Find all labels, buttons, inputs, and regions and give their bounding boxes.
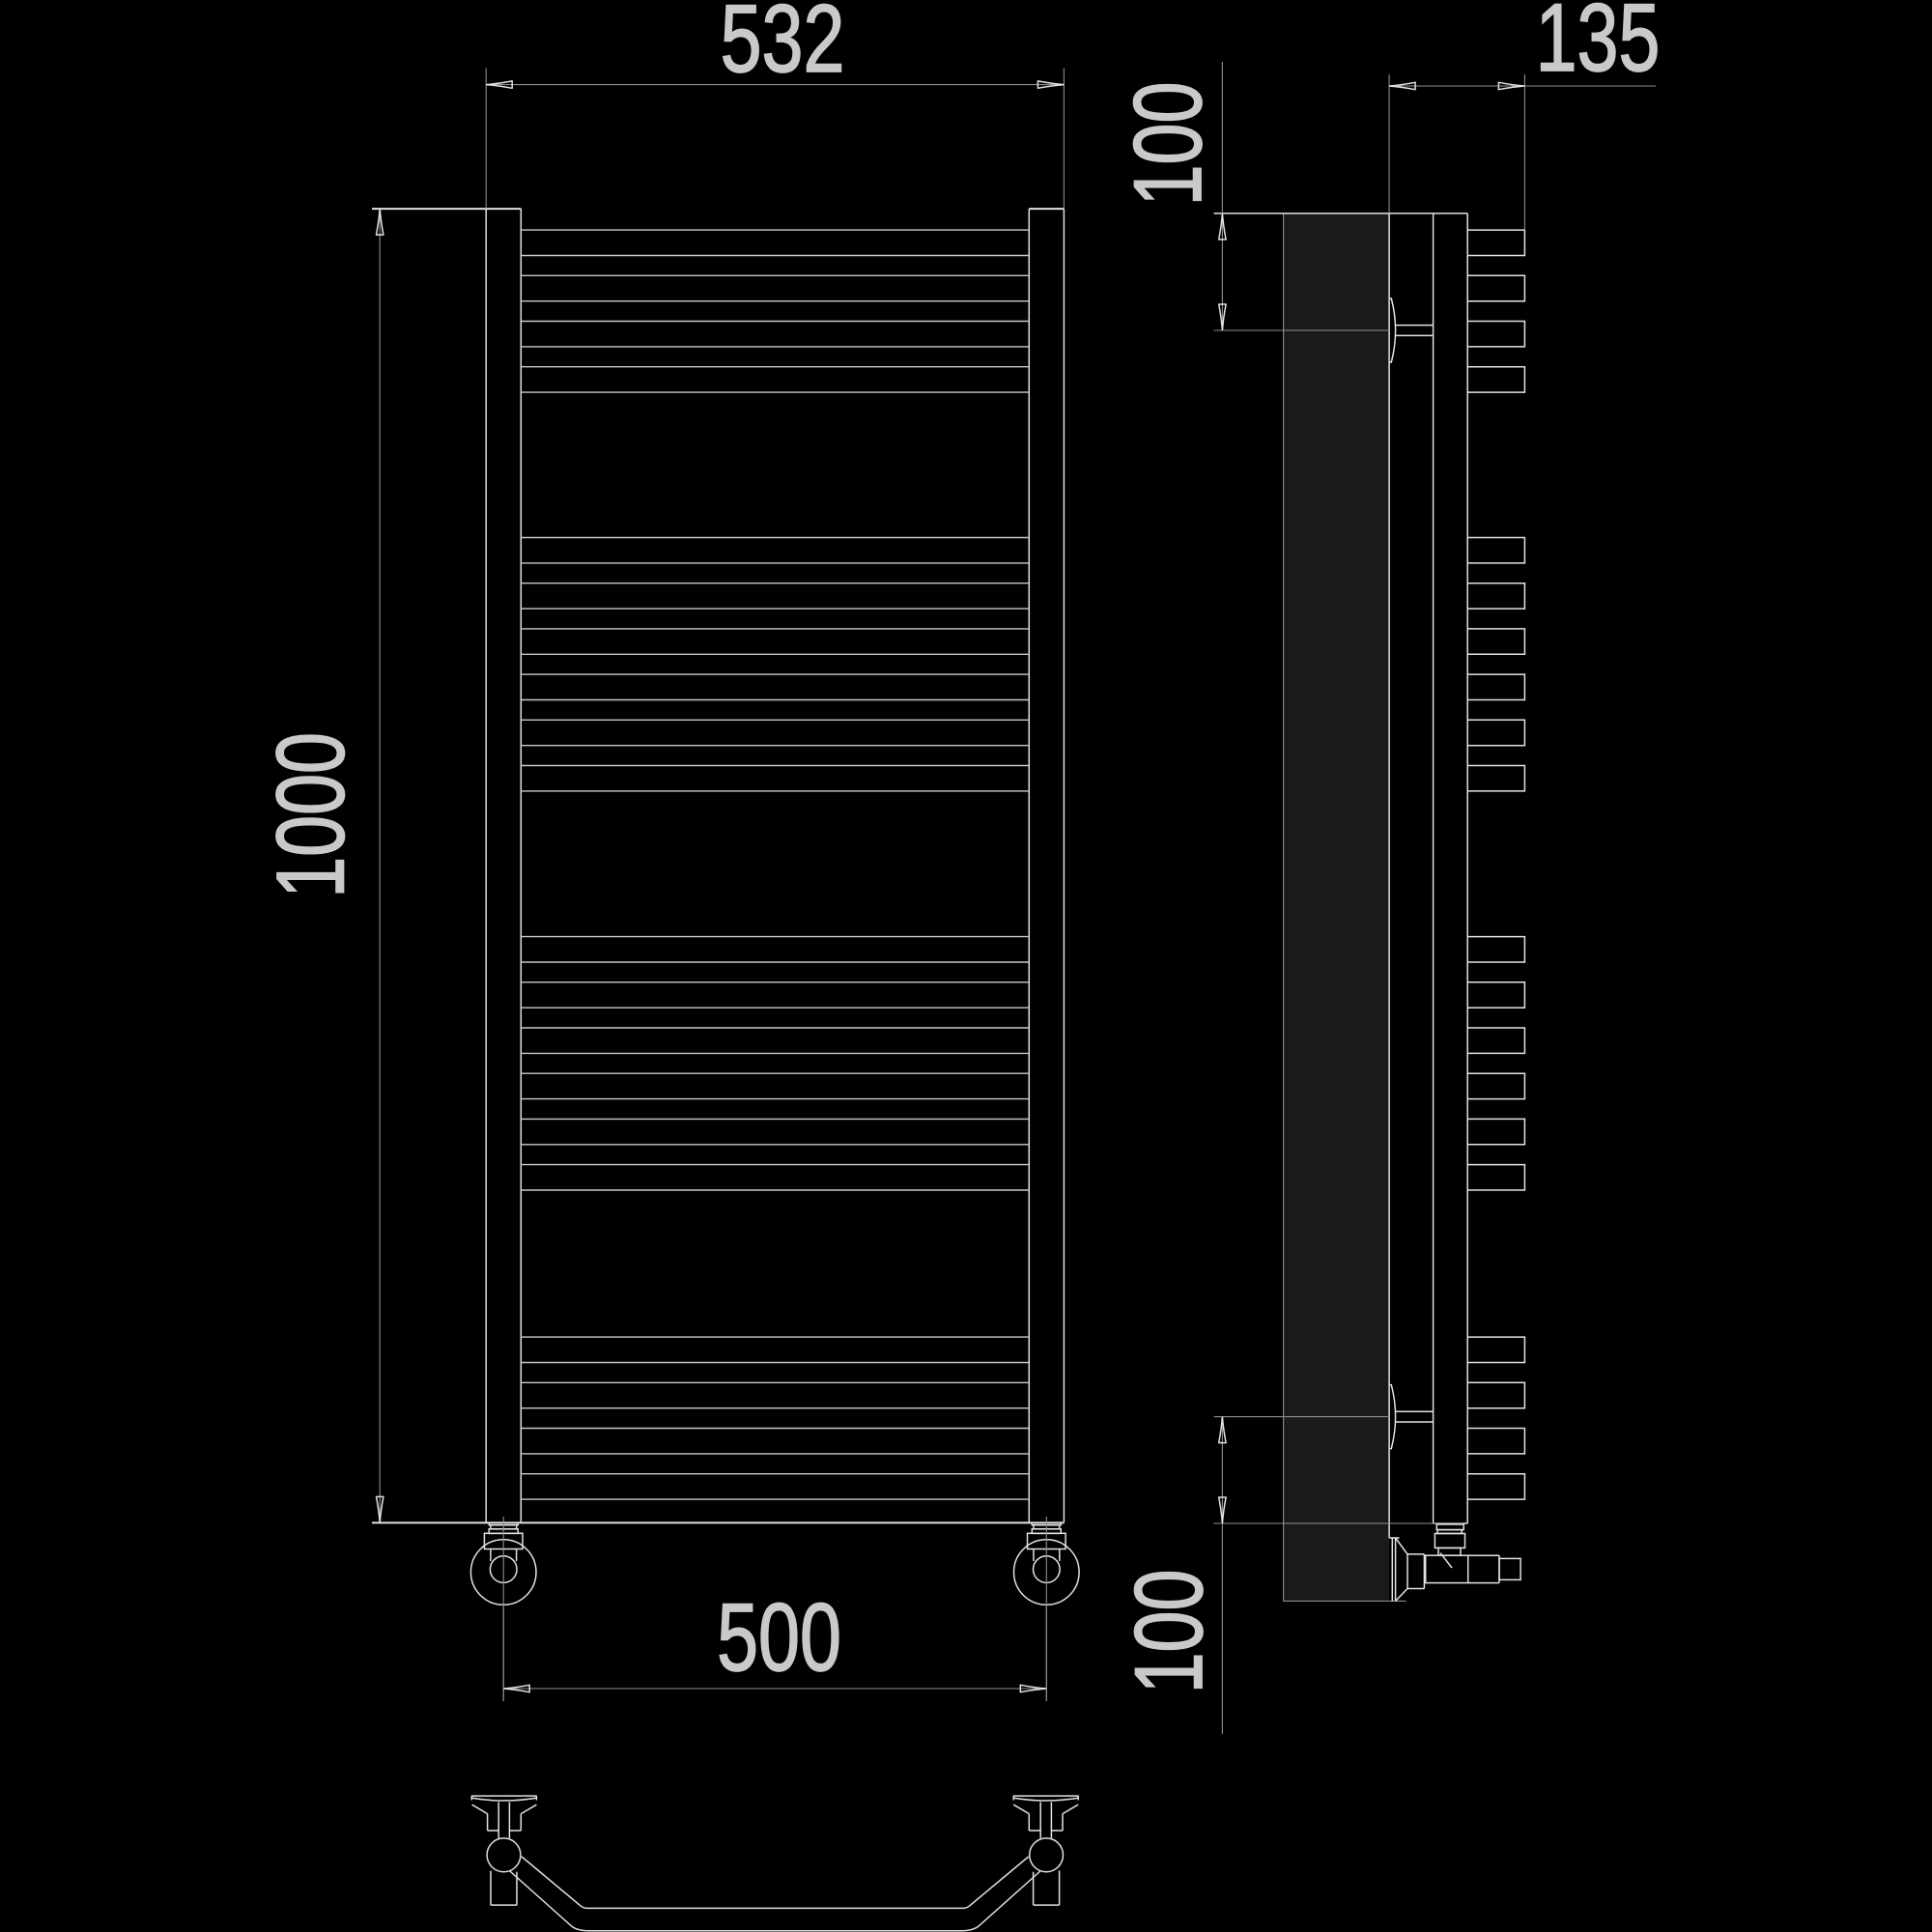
svg-text:532: 532 <box>721 0 845 92</box>
svg-text:135: 135 <box>1536 0 1661 91</box>
svg-text:100: 100 <box>1116 1570 1222 1694</box>
svg-text:100: 100 <box>1115 82 1221 207</box>
svg-text:500: 500 <box>717 1584 841 1690</box>
svg-text:1000: 1000 <box>258 732 364 898</box>
